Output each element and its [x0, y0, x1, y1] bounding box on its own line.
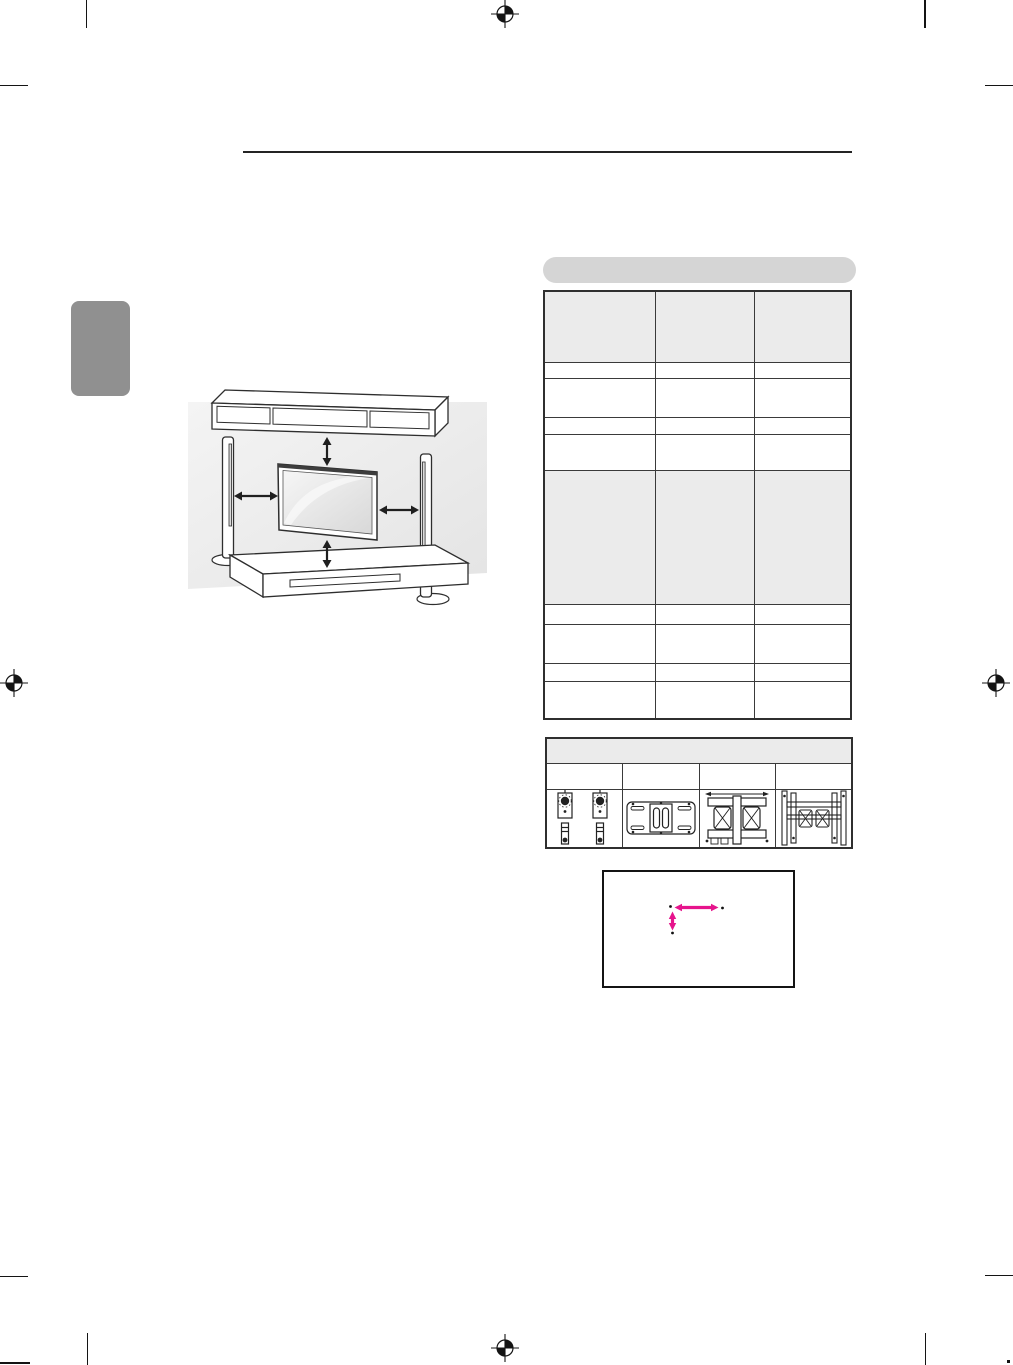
bracket-label-cell: [546, 763, 623, 789]
spacing-table-row: [544, 378, 851, 417]
spacing-table-cell: [544, 470, 655, 604]
clearance-illustration: [185, 383, 490, 615]
spacing-table-cell: [754, 362, 851, 378]
flat-mount-plate-icon: [625, 790, 697, 846]
spacing-table-cell: [655, 378, 754, 417]
bracket-label-row: [546, 763, 852, 789]
spacing-table-row: [544, 604, 851, 624]
bracket-label-cell: [699, 763, 776, 789]
spacing-table-cell: [655, 417, 754, 434]
corner-reference-dot: [669, 905, 672, 908]
spacing-table-cell: [754, 470, 851, 604]
spacing-table-row: [544, 434, 851, 470]
spacing-table-cell: [544, 291, 655, 362]
flat-tv: [278, 464, 377, 540]
spacing-table-row: [544, 681, 851, 719]
spacing-table-cell: [655, 362, 754, 378]
crop-mark-bottom-right-vertical: [925, 1333, 927, 1365]
spacing-table-cell: [544, 681, 655, 719]
spacing-table-cell: [544, 417, 655, 434]
right-reference-dot: [721, 907, 724, 910]
page-header-rule: [243, 151, 852, 153]
bracket-image-cell: [546, 789, 623, 848]
bracket-image-cell: [623, 789, 700, 848]
spacing-table-cell: [544, 378, 655, 417]
spacing-table-cell: [544, 624, 655, 663]
spacing-table-cell: [544, 604, 655, 624]
spacing-table-row: [544, 362, 851, 378]
spacing-table-cell: [754, 417, 851, 434]
spacing-table-row: [544, 624, 851, 663]
crop-mark-top-right-vertical: [924, 0, 926, 28]
chapter-side-tab: [71, 301, 130, 396]
spacing-table-cell: [655, 624, 754, 663]
bracket-header-cell: [546, 738, 852, 763]
vesa-measure-box: [602, 870, 795, 988]
width-measure-arrow: [675, 904, 719, 911]
registration-mark-icon: [982, 669, 1010, 697]
crop-mark-bottom-right-horizontal: [985, 1275, 1013, 1277]
bracket-label-cell: [776, 763, 853, 789]
media-cabinet: [230, 545, 468, 597]
articulating-mount-icon: [702, 790, 772, 846]
spacing-table-cell: [655, 663, 754, 681]
spacing-table-cell: [544, 663, 655, 681]
spacing-table-cell: [544, 362, 655, 378]
crop-mark-bottom-left-vertical: [87, 1333, 89, 1365]
spacing-table-cell: [754, 378, 851, 417]
registration-mark-icon: [491, 0, 519, 28]
bracket-label-cell: [623, 763, 700, 789]
registration-mark-icon: [491, 1334, 519, 1362]
dual-rail-mount-icon: [779, 790, 849, 846]
spacing-table-row: [544, 291, 851, 362]
spacing-table-cell: [655, 434, 754, 470]
spacing-table-cell: [754, 291, 851, 362]
spacing-table-cell: [655, 604, 754, 624]
bracket-image-row: [546, 789, 852, 848]
spacing-table-cell: [655, 291, 754, 362]
spacing-table-cell: [754, 624, 851, 663]
crop-mark-bottom-left-horizontal: [0, 1276, 28, 1278]
registration-mark-icon: [0, 669, 28, 697]
manual-page: [0, 0, 1013, 1365]
spacing-table-cell: [655, 470, 754, 604]
spacing-table-cell: [754, 663, 851, 681]
shelf-unit: [212, 390, 448, 436]
section-title-pill: [543, 257, 856, 283]
crop-mark-top-left-vertical: [86, 0, 88, 28]
crop-mark-bottom-left-corner: [0, 1362, 30, 1365]
spacing-table-cell: [754, 604, 851, 624]
bottom-reference-dot: [671, 932, 674, 935]
height-measure-arrow: [669, 912, 676, 931]
spacing-table-cell: [754, 681, 851, 719]
bracket-header-row: [546, 738, 852, 763]
bracket-table: [545, 737, 853, 849]
crop-mark-bottom-right-corner-dot: [1007, 1360, 1010, 1363]
spacing-table-row: [544, 663, 851, 681]
crop-mark-top-right-horizontal: [985, 85, 1013, 87]
bracket-image-cell: [699, 789, 776, 848]
spacing-table-row: [544, 417, 851, 434]
bracket-image-cell: [776, 789, 853, 848]
spacing-table-cell: [655, 681, 754, 719]
spacing-table-row: [544, 470, 851, 604]
wall-bracket-pair-icon: [550, 790, 620, 846]
spacing-table-cell: [544, 434, 655, 470]
spacing-table: [543, 290, 852, 720]
crop-mark-top-left-horizontal: [0, 85, 28, 87]
spacing-table-cell: [754, 434, 851, 470]
spacing-table-body: [544, 291, 851, 719]
